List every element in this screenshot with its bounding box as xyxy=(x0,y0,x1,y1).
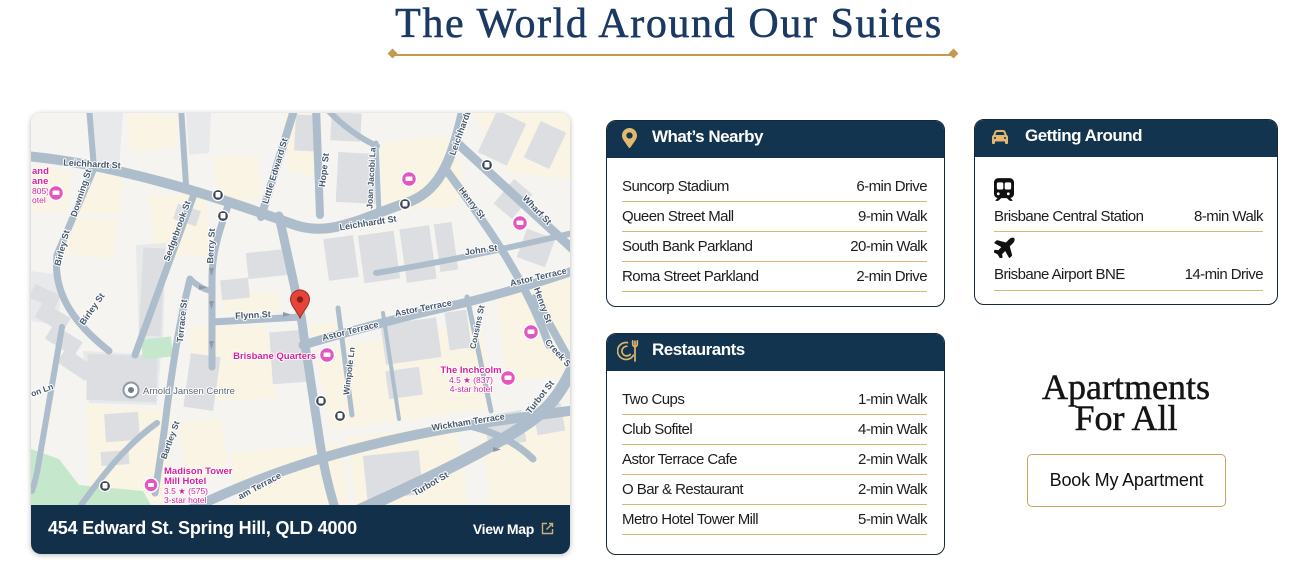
svg-text:4-star hotel: 4-star hotel xyxy=(450,384,493,394)
svg-text:Flynn St: Flynn St xyxy=(235,309,271,321)
svg-text:Arnold Jansen Centre: Arnold Jansen Centre xyxy=(143,386,235,397)
svg-text:3-star hotel: 3-star hotel xyxy=(164,495,207,505)
svg-text:Brisbane Quarters: Brisbane Quarters xyxy=(233,351,316,362)
svg-text:otel: otel xyxy=(32,195,46,205)
svg-text:Berry St: Berry St xyxy=(205,228,217,263)
